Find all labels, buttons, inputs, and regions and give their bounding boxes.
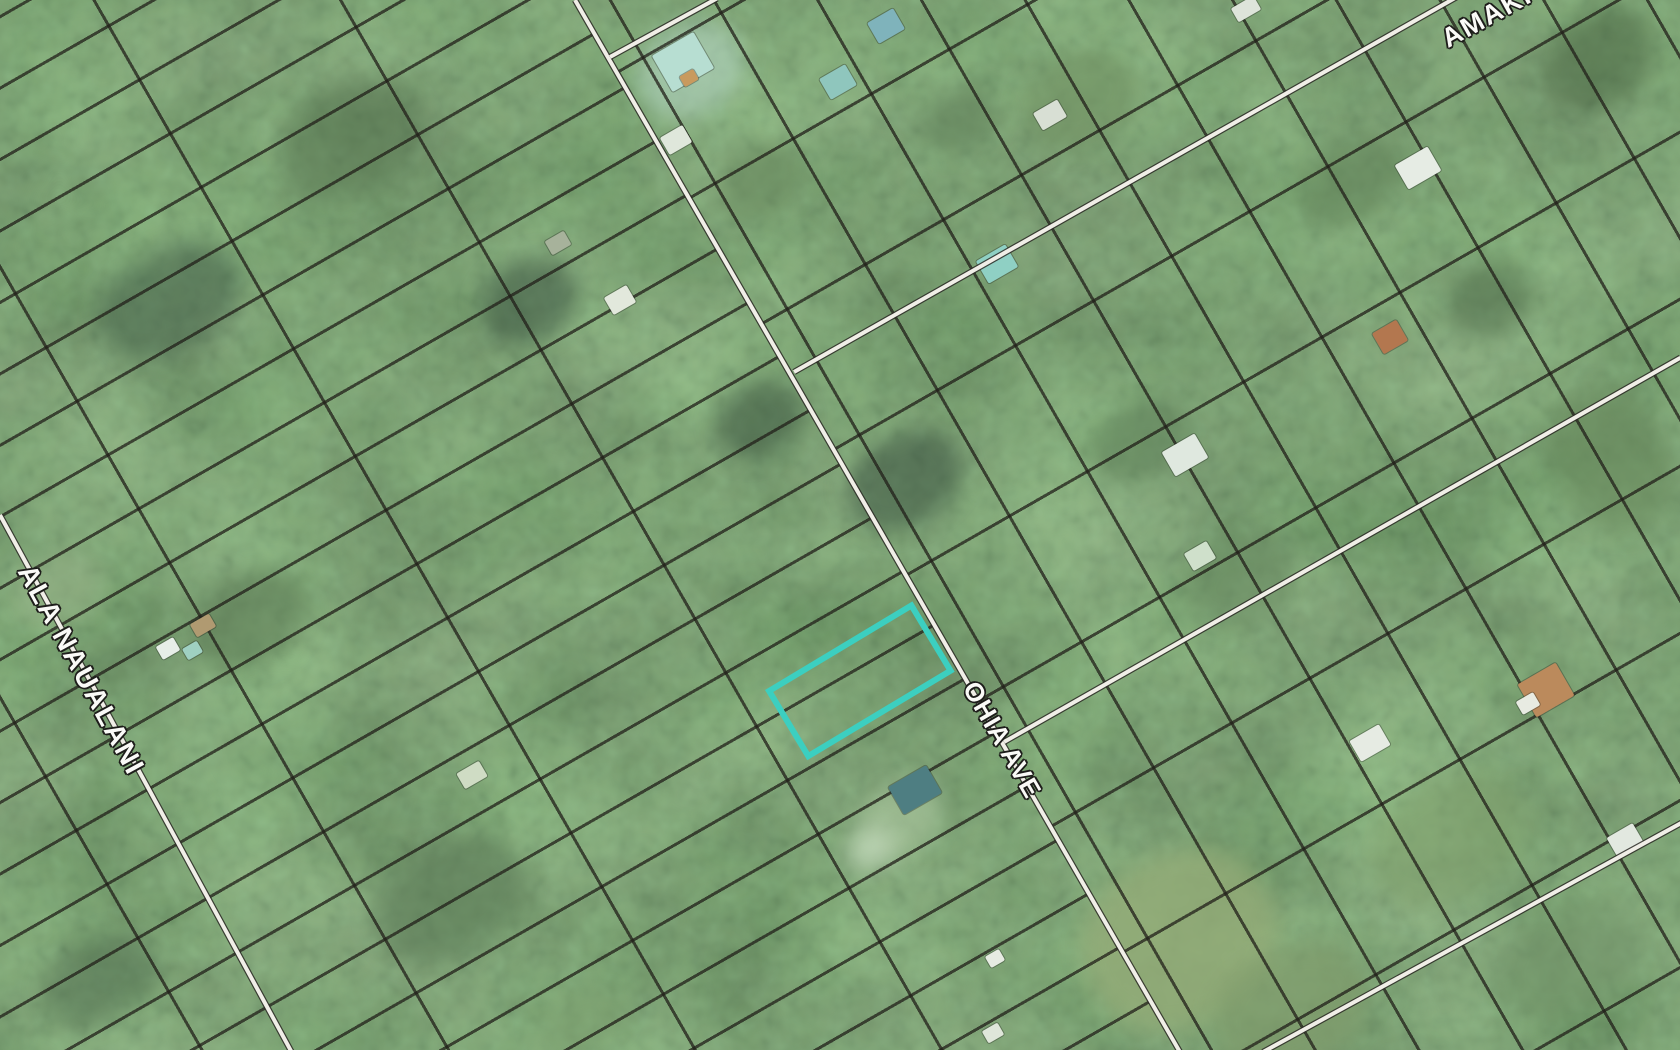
highlighted-parcel-outline bbox=[765, 601, 955, 760]
satellite-map: ALA NAUALANIOHIA AVEAMAKI bbox=[0, 0, 1680, 1050]
highlight-layer bbox=[0, 0, 1680, 1050]
